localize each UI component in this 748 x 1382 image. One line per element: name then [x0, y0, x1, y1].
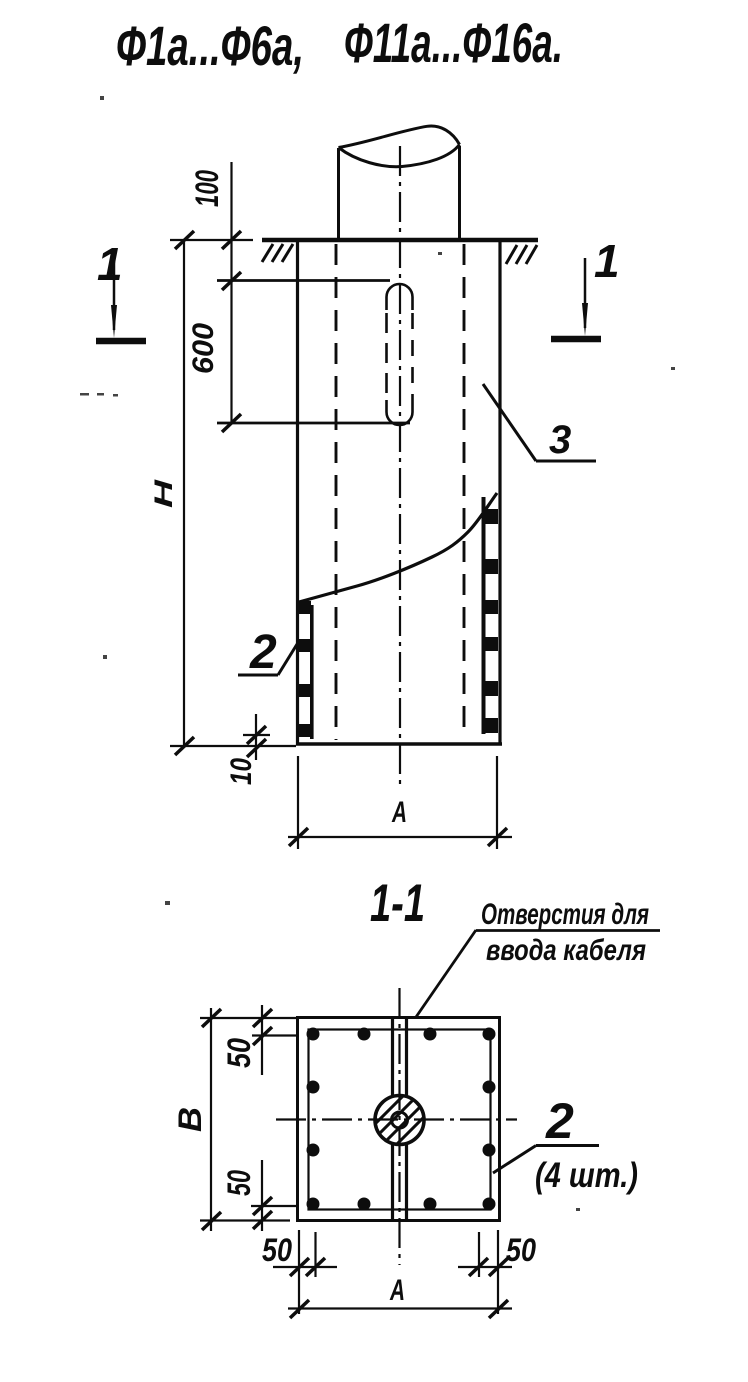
svg-text:Н: Н: [150, 479, 178, 508]
svg-text:50: 50: [221, 1170, 257, 1196]
svg-text:В: В: [172, 1107, 208, 1132]
svg-text:1: 1: [594, 235, 620, 287]
svg-text:Ф11а...Ф16а.: Ф11а...Ф16а.: [344, 11, 563, 74]
svg-text:Ф1а...Ф6а,: Ф1а...Ф6а,: [116, 14, 304, 77]
svg-text:1: 1: [97, 238, 123, 290]
svg-text:Отверстия для: Отверстия для: [481, 898, 649, 931]
svg-text:А: А: [391, 796, 407, 829]
svg-text:3: 3: [549, 418, 571, 462]
svg-text:600: 600: [187, 323, 220, 374]
svg-text:1-1: 1-1: [370, 874, 425, 933]
svg-text:50: 50: [262, 1232, 292, 1268]
svg-text:А: А: [389, 1274, 405, 1307]
svg-text:2: 2: [545, 1093, 574, 1149]
svg-text:100: 100: [189, 170, 225, 207]
svg-text:ввода кабеля: ввода кабеля: [486, 934, 646, 967]
svg-text:(4 шт.): (4 шт.): [535, 1156, 638, 1195]
svg-text:10: 10: [225, 758, 258, 785]
svg-text:2: 2: [249, 626, 277, 679]
svg-text:50: 50: [221, 1038, 257, 1068]
svg-text:50: 50: [506, 1232, 536, 1268]
